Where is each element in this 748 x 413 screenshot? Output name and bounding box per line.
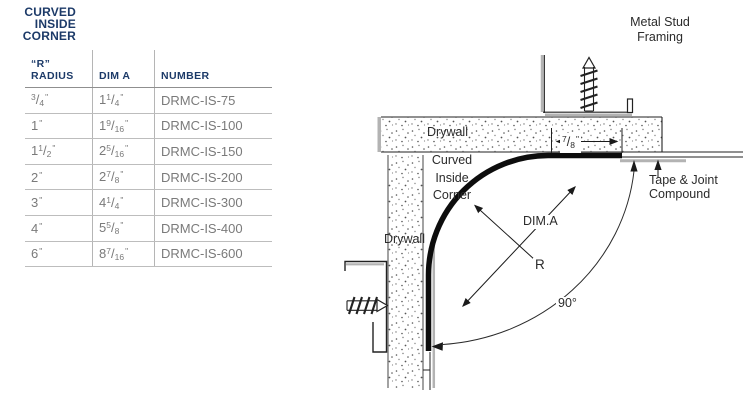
tape-joint-label: Tape & Joint Compound: [649, 173, 718, 201]
spec-table-body: 3/4"11/4"DRMC-IS-751"19/16"DRMC-IS-10011…: [25, 88, 272, 267]
dim-a-cell: 87/16": [93, 241, 155, 267]
dim-a-cell: 55/8": [93, 215, 155, 241]
table-row: 4"55/8"DRMC-IS-400: [25, 215, 272, 241]
radius-cell: 3": [25, 190, 93, 216]
catalog-page: CURVED INSIDE CORNER “R” RADIUS DIM A NU…: [0, 0, 748, 413]
radius-cell: 11/2": [25, 139, 93, 165]
flange-width-label: 7/8": [560, 133, 581, 153]
number-cell: DRMC-IS-300: [155, 190, 273, 216]
dim-arrow-a: [463, 187, 575, 306]
screw-icon: [347, 297, 388, 314]
flange-width-value: 7/8": [562, 135, 579, 149]
page-title-line: CORNER: [6, 30, 76, 42]
label-line: Metal Stud: [596, 15, 724, 30]
label-line: Curved: [426, 152, 478, 170]
dim-a-cell: 19/16": [93, 113, 155, 139]
radius-cell: 1": [25, 113, 93, 139]
label-line: Tape & Joint: [649, 173, 718, 187]
number-cell: DRMC-IS-400: [155, 215, 273, 241]
table-row: 2"27/8"DRMC-IS-200: [25, 164, 272, 190]
label-line: Compound: [649, 187, 718, 201]
drywall-top-label: Drywall: [427, 126, 468, 140]
table-row: 1"19/16"DRMC-IS-100: [25, 113, 272, 139]
screw-icon: [581, 58, 598, 112]
radius-cell: 6": [25, 241, 93, 267]
radius-cell: 4": [25, 215, 93, 241]
label-line: Inside: [426, 170, 478, 188]
spec-table: “R” RADIUS DIM A NUMBER 3/4"11/4"DRMC-IS…: [25, 50, 272, 267]
col-header-number: NUMBER: [155, 50, 273, 88]
curved-inside-corner-label: Curved Inside Corner: [426, 152, 478, 205]
number-cell: DRMC-IS-150: [155, 139, 273, 165]
corner-detail-diagram: [330, 0, 748, 413]
radius-label: R: [533, 258, 547, 272]
col-header-radius: “R” RADIUS: [25, 50, 93, 88]
number-cell: DRMC-IS-75: [155, 88, 273, 114]
table-row: 3"41/4"DRMC-IS-300: [25, 190, 272, 216]
table-row: 3/4"11/4"DRMC-IS-75: [25, 88, 272, 114]
radius-cell: 3/4": [25, 88, 93, 114]
dim-a-cell: 11/4": [93, 88, 155, 114]
dim-a-label: DIM.A: [521, 215, 560, 229]
drywall-side-label: Drywall: [384, 233, 425, 247]
number-cell: DRMC-IS-600: [155, 241, 273, 267]
radius-cell: 2": [25, 164, 93, 190]
table-row: 6"87/16"DRMC-IS-600: [25, 241, 272, 267]
metal-stud-framing-label: Metal Stud Framing: [596, 15, 724, 44]
angle-label: 90°: [556, 297, 579, 311]
page-title: CURVED INSIDE CORNER: [6, 6, 76, 42]
dim-a-cell: 25/16": [93, 139, 155, 165]
dim-a-cell: 27/8": [93, 164, 155, 190]
label-line: Corner: [426, 187, 478, 205]
number-cell: DRMC-IS-100: [155, 113, 273, 139]
label-line: Framing: [596, 30, 724, 45]
number-cell: DRMC-IS-200: [155, 164, 273, 190]
spec-table-header: “R” RADIUS DIM A NUMBER: [25, 50, 272, 88]
table-row: 11/2"25/16"DRMC-IS-150: [25, 139, 272, 165]
side-drywall-panel: [388, 155, 423, 390]
col-header-dim-a: DIM A: [93, 50, 155, 88]
dim-a-cell: 41/4": [93, 190, 155, 216]
